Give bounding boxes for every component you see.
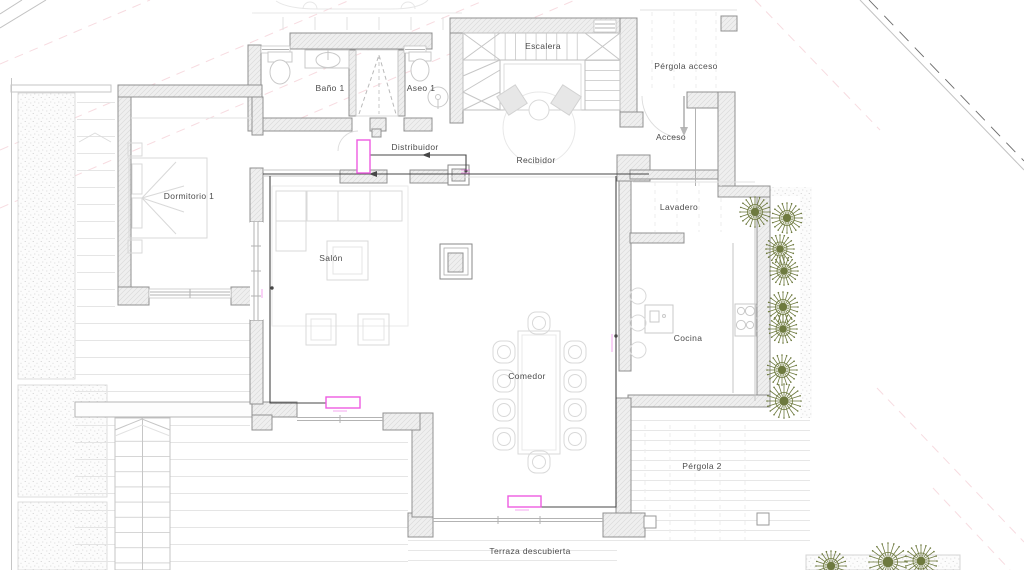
plant-icon — [769, 256, 799, 286]
room-label-bano1: Baño 1 — [315, 83, 344, 93]
sliding-door-salon-south — [297, 415, 383, 423]
car-outline — [252, 0, 462, 13]
chair-icon — [564, 341, 586, 363]
kitchen-island-icon — [645, 305, 673, 333]
window — [594, 20, 616, 32]
hob-icon — [735, 304, 758, 336]
exterior-staircase-icon — [115, 418, 170, 570]
sliding-door-comedor-south — [433, 516, 603, 524]
shower-icon — [356, 50, 398, 116]
stool-icon — [630, 288, 646, 304]
radiator-icon — [508, 496, 541, 507]
plant-icon — [768, 314, 798, 344]
toilet-icon — [409, 52, 431, 81]
sofa-icon — [272, 186, 408, 345]
sink-icon — [305, 50, 349, 68]
room-label-dormitorio1: Dormitorio 1 — [164, 191, 215, 201]
room-label-salon: Salón — [319, 253, 343, 263]
plant-icon — [771, 202, 803, 234]
room-label-acceso: Acceso — [656, 132, 686, 142]
stool-icon — [630, 342, 646, 358]
room-label-cocina: Cocina — [674, 333, 703, 343]
pergola-post — [644, 516, 656, 528]
room-label-aseo1: Aseo 1 — [407, 83, 436, 93]
plot-boundary-line — [860, 0, 1024, 170]
stone-edging — [800, 196, 812, 418]
room-label-pergola2: Pérgola 2 — [682, 461, 722, 471]
room-label-lavadero: Lavadero — [660, 202, 698, 212]
pergola-acceso-beams — [652, 12, 716, 90]
plant-icon — [766, 354, 798, 386]
gravel-strip — [18, 93, 75, 379]
floor-plan-page: Baño 1 Aseo 1 Escalera Pérgola acceso Ac… — [0, 0, 1024, 570]
room-label-distribuidor: Distribuidor — [391, 142, 438, 152]
window-dormitorio-south — [149, 289, 231, 298]
toilet-icon — [268, 52, 292, 84]
radiator-icon — [326, 397, 360, 408]
dining-table-icon — [518, 331, 560, 454]
chair-icon — [493, 341, 515, 363]
stone-edging — [768, 187, 812, 196]
room-label-escalera: Escalera — [525, 41, 561, 51]
chair-icon — [564, 428, 586, 450]
chair-icon — [564, 370, 586, 392]
plot-boundary-dashed — [869, 0, 1024, 161]
stool-icon — [630, 315, 646, 331]
window-salon-west — [250, 222, 263, 320]
room-label-recibidor: Recibidor — [516, 155, 555, 165]
kerb-band — [11, 85, 111, 92]
room-label-pergola-acceso: Pérgola acceso — [654, 61, 718, 71]
chair-icon — [564, 399, 586, 421]
pergola-post — [757, 513, 769, 525]
deck-terrace-south — [170, 430, 408, 570]
radiator-icon — [357, 140, 370, 173]
chimney-column — [440, 244, 472, 279]
corner-line — [0, 0, 46, 28]
room-label-comedor: Comedor — [508, 371, 545, 381]
chair-icon — [493, 428, 515, 450]
chair-icon — [493, 399, 515, 421]
plant-icon — [766, 383, 802, 419]
room-label-terraza: Terraza descubierta — [489, 546, 570, 556]
floor-plan-canvas — [0, 0, 1024, 570]
door-swing — [338, 131, 358, 151]
corner-line — [0, 0, 22, 14]
kitchen-stools — [630, 288, 646, 358]
low-garden-wall — [75, 402, 252, 417]
deck-walkway — [77, 91, 115, 307]
